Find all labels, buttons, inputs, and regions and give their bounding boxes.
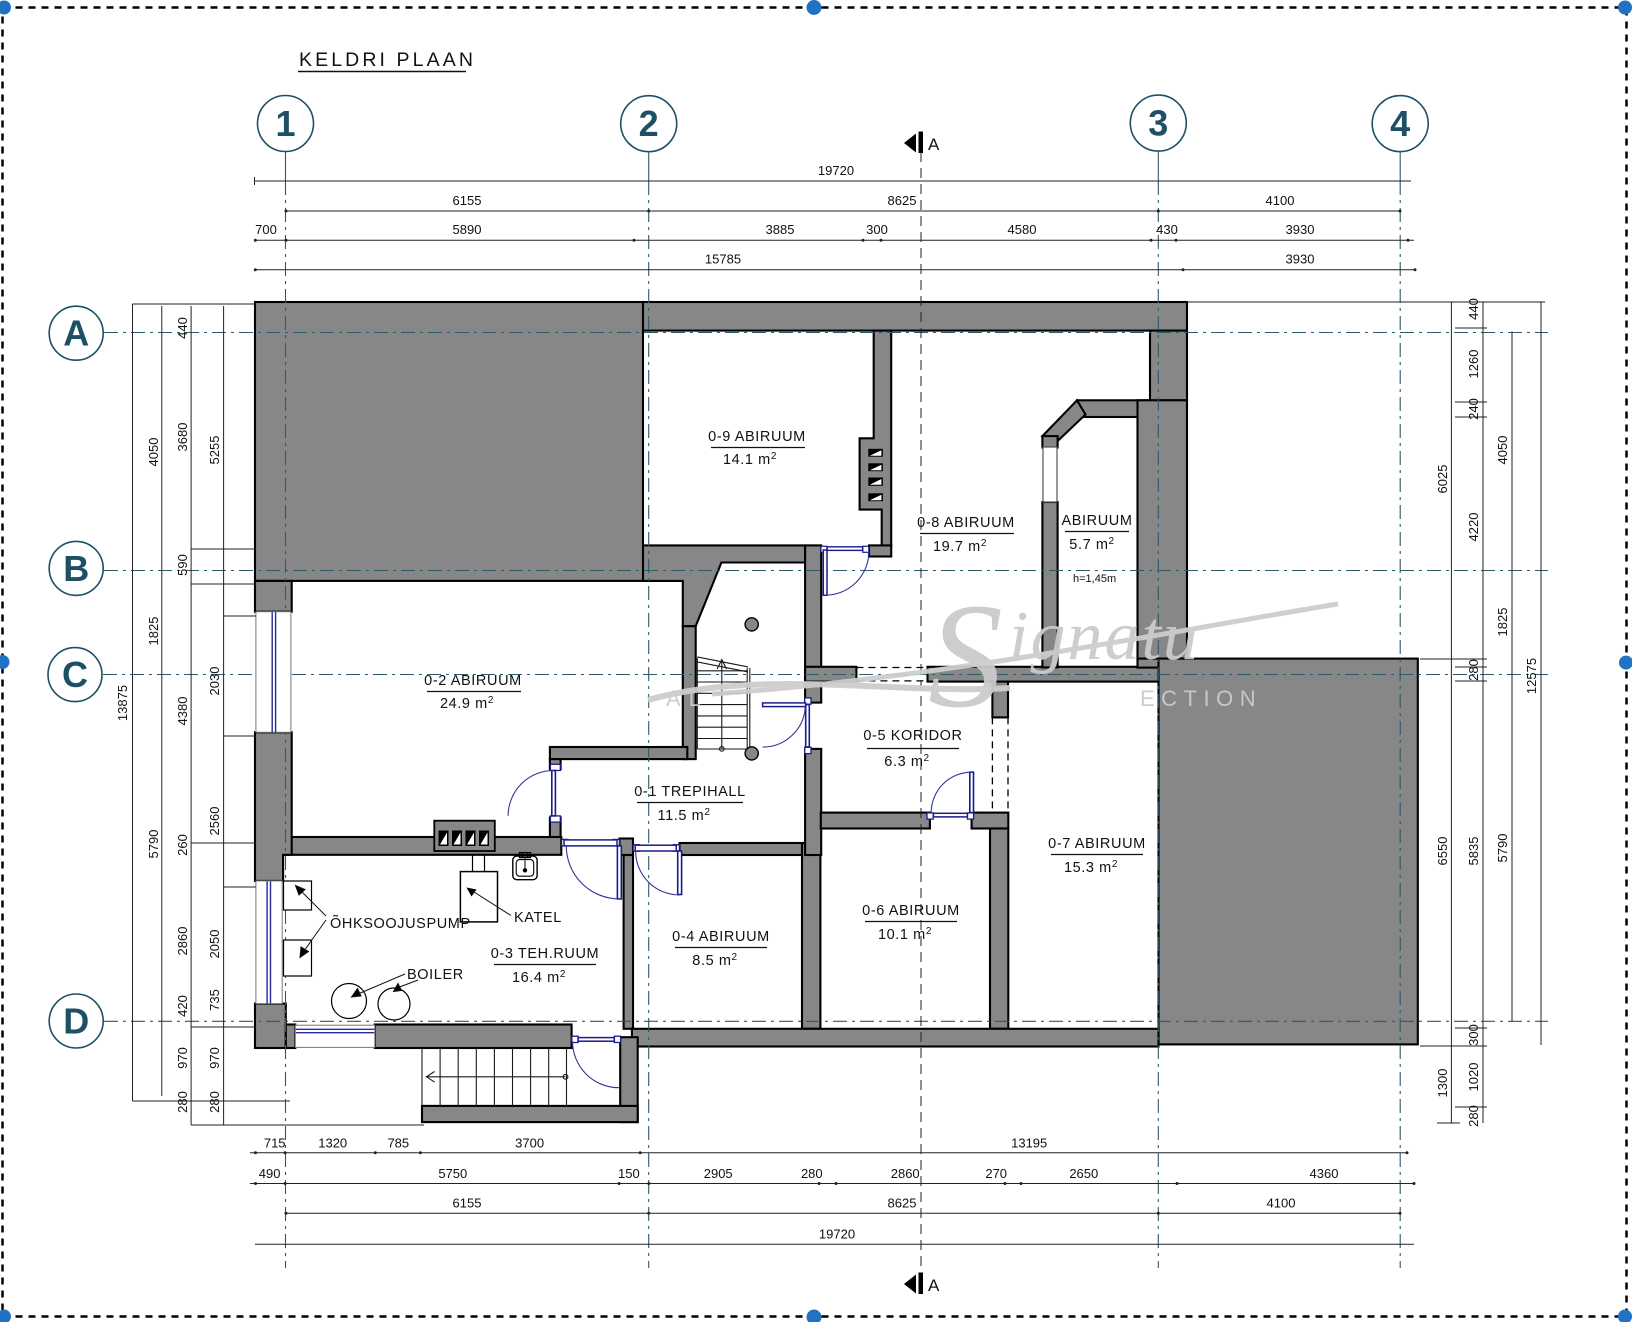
svg-text:2050: 2050 — [207, 930, 222, 959]
svg-text:0-1 TREPIHALL: 0-1 TREPIHALL — [634, 784, 746, 800]
svg-text:3700: 3700 — [515, 1136, 544, 1151]
svg-text:0-7 ABIRUUM: 0-7 ABIRUUM — [1048, 836, 1146, 852]
svg-text:1020: 1020 — [1466, 1063, 1481, 1092]
svg-text:D: D — [63, 1001, 89, 1042]
svg-text:4050: 4050 — [146, 438, 161, 467]
svg-text:B: B — [63, 548, 89, 589]
svg-text:2905: 2905 — [704, 1166, 733, 1181]
svg-text:13195: 13195 — [1011, 1136, 1047, 1151]
svg-text:2560: 2560 — [207, 807, 222, 836]
svg-text:3: 3 — [1148, 103, 1168, 144]
svg-text:3885: 3885 — [766, 222, 795, 237]
svg-text:1260: 1260 — [1466, 350, 1481, 379]
svg-text:785: 785 — [387, 1136, 409, 1151]
svg-text:700: 700 — [255, 222, 277, 237]
svg-text:6155: 6155 — [453, 193, 482, 208]
svg-text:4: 4 — [1390, 103, 1410, 144]
svg-text:4050: 4050 — [1495, 436, 1510, 465]
svg-text:1320: 1320 — [318, 1136, 347, 1151]
svg-text:4100: 4100 — [1266, 193, 1295, 208]
svg-text:280: 280 — [207, 1091, 222, 1113]
svg-text:KATEL: KATEL — [514, 910, 562, 926]
svg-text:12575: 12575 — [1524, 658, 1539, 694]
svg-text:8625: 8625 — [888, 193, 917, 208]
svg-text:590: 590 — [175, 554, 190, 576]
svg-text:A: A — [928, 1276, 940, 1295]
svg-text:0-3 TEH.RUUM: 0-3 TEH.RUUM — [491, 946, 599, 962]
svg-text:5255: 5255 — [207, 436, 222, 465]
svg-text:440: 440 — [175, 317, 190, 339]
svg-text:970: 970 — [175, 1047, 190, 1069]
svg-text:0-8 ABIRUUM: 0-8 ABIRUUM — [917, 515, 1015, 531]
svg-text:10.1 m2: 10.1 m2 — [878, 926, 932, 943]
svg-text:280: 280 — [801, 1166, 823, 1181]
svg-text:280: 280 — [1466, 1105, 1481, 1127]
svg-text:2: 2 — [639, 103, 659, 144]
svg-text:4380: 4380 — [175, 697, 190, 726]
svg-text:0-4 ABIRUUM: 0-4 ABIRUUM — [672, 929, 770, 945]
svg-text:1825: 1825 — [146, 617, 161, 646]
svg-text:A: A — [63, 313, 89, 354]
svg-text:2860: 2860 — [175, 927, 190, 956]
svg-text:2860: 2860 — [891, 1166, 920, 1181]
svg-text:970: 970 — [207, 1047, 222, 1069]
svg-text:ECTION: ECTION — [1140, 686, 1262, 711]
svg-text:5790: 5790 — [1495, 834, 1510, 863]
svg-text:19720: 19720 — [819, 1227, 855, 1242]
svg-text:19.7 m2: 19.7 m2 — [933, 538, 987, 555]
svg-text:0-6 ABIRUUM: 0-6 ABIRUUM — [862, 903, 960, 919]
svg-text:ABIRUUM: ABIRUUM — [1061, 513, 1132, 529]
svg-text:13875: 13875 — [115, 685, 130, 721]
svg-text:KELDRI PLAAN: KELDRI PLAAN — [299, 49, 476, 71]
svg-text:430: 430 — [1156, 222, 1178, 237]
svg-text:5.7 m2: 5.7 m2 — [1069, 536, 1114, 553]
svg-text:15785: 15785 — [705, 252, 741, 267]
svg-text:270: 270 — [985, 1166, 1007, 1181]
svg-text:3930: 3930 — [1286, 252, 1315, 267]
svg-text:19720: 19720 — [818, 163, 854, 178]
svg-text:4220: 4220 — [1466, 513, 1481, 542]
svg-text:5790: 5790 — [146, 830, 161, 859]
svg-text:24.9 m2: 24.9 m2 — [440, 695, 494, 712]
svg-text:1300: 1300 — [1435, 1069, 1450, 1098]
svg-text:0-2 ABIRUUM: 0-2 ABIRUUM — [424, 673, 522, 689]
svg-text:1: 1 — [275, 103, 295, 144]
svg-text:ÕHKSOOJUSPUMP: ÕHKSOOJUSPUMP — [330, 915, 471, 932]
svg-text:300: 300 — [866, 222, 888, 237]
svg-text:BOILER: BOILER — [407, 967, 464, 983]
svg-text:440: 440 — [1466, 298, 1481, 320]
svg-text:2650: 2650 — [1069, 1166, 1098, 1181]
svg-text:1825: 1825 — [1495, 608, 1510, 637]
svg-text:5835: 5835 — [1466, 837, 1481, 866]
svg-text:4100: 4100 — [1267, 1196, 1296, 1211]
svg-text:15.3 m2: 15.3 m2 — [1064, 859, 1118, 876]
svg-text:6025: 6025 — [1435, 465, 1450, 494]
svg-text:8.5 m2: 8.5 m2 — [692, 952, 737, 969]
svg-text:240: 240 — [1466, 398, 1481, 420]
svg-text:14.1 m2: 14.1 m2 — [723, 451, 777, 468]
svg-text:8625: 8625 — [888, 1196, 917, 1211]
svg-text:280: 280 — [175, 1091, 190, 1113]
svg-text:S: S — [928, 573, 1003, 739]
svg-text:h=1,45m: h=1,45m — [1073, 573, 1116, 585]
svg-text:6550: 6550 — [1435, 837, 1450, 866]
svg-text:715: 715 — [264, 1136, 286, 1151]
svg-text:A: A — [928, 135, 940, 154]
svg-text:C: C — [62, 654, 88, 695]
svg-text:3680: 3680 — [175, 423, 190, 452]
svg-text:5750: 5750 — [438, 1166, 467, 1181]
svg-text:3930: 3930 — [1286, 222, 1315, 237]
svg-text:5890: 5890 — [453, 222, 482, 237]
svg-text:6.3 m2: 6.3 m2 — [884, 753, 929, 770]
svg-text:735: 735 — [207, 989, 222, 1011]
svg-text:AL: AL — [666, 686, 709, 711]
svg-text:4580: 4580 — [1008, 222, 1037, 237]
svg-text:490: 490 — [259, 1166, 281, 1181]
svg-text:0-9 ABIRUUM: 0-9 ABIRUUM — [708, 429, 806, 445]
svg-text:ignatu: ignatu — [1009, 598, 1200, 675]
svg-text:6155: 6155 — [453, 1196, 482, 1211]
svg-text:420: 420 — [175, 995, 190, 1017]
svg-text:280: 280 — [1466, 659, 1481, 681]
svg-text:300: 300 — [1466, 1024, 1481, 1046]
svg-text:2030: 2030 — [207, 667, 222, 696]
svg-text:16.4 m2: 16.4 m2 — [512, 969, 566, 986]
svg-text:11.5 m2: 11.5 m2 — [657, 807, 710, 824]
svg-text:260: 260 — [175, 834, 190, 856]
svg-text:4360: 4360 — [1310, 1166, 1339, 1181]
svg-text:0-5 KORIDOR: 0-5 KORIDOR — [863, 728, 962, 744]
svg-text:150: 150 — [618, 1166, 640, 1181]
